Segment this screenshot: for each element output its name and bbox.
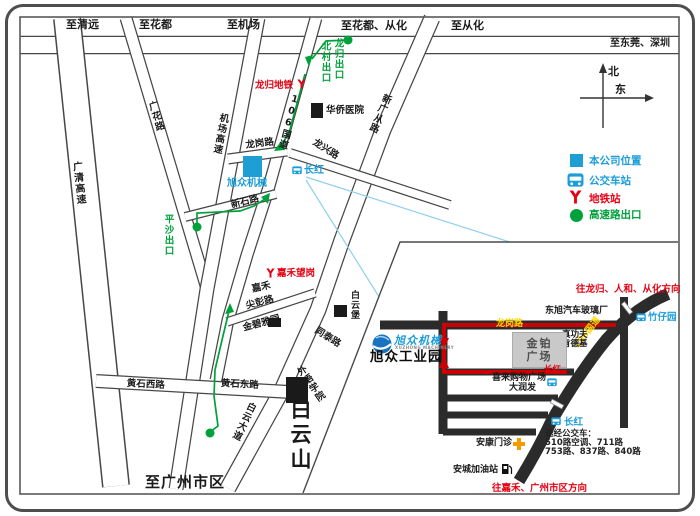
label-jiahe-wanggang: 嘉禾望岗 (277, 269, 315, 279)
label-ancheng-gas: 安城加油站 (453, 466, 498, 475)
legend-company-label: 本公司位置 (589, 156, 642, 167)
label-beicun-exit: 北村出口 (320, 41, 330, 83)
bus-stop-icon-changhong-inset (551, 417, 561, 425)
highway-exit-dot-pingsha (193, 223, 202, 232)
label-xilai-plaza: 喜来购物广场 (492, 374, 546, 383)
label-zhuziyuan: 竹仔园 (648, 313, 677, 323)
metro-icon-jiahewanggang (266, 269, 274, 278)
label-to-airport: 至机场 (227, 19, 260, 30)
label-to-guangzhou: 至广州市区 (145, 475, 225, 490)
label-direction-south: 往嘉禾、广州市区方向 (492, 484, 587, 494)
legend-exit-label: 高速路出口 (589, 210, 642, 221)
label-baiyun-mountain: 白云山 (289, 398, 310, 473)
label-company-name-main: 旭众机械 (227, 179, 267, 189)
route-map: 至清远 至花都 至机场 至花都、从化 至从化 至东莞、深圳 北 东 本公司位置 … (0, 0, 700, 516)
legend-exit-icon (570, 209, 583, 222)
label-glass-factory: 东旭汽车玻璃厂 (545, 307, 608, 316)
label-direction-north: 往龙归、人和、从化方向 (576, 285, 681, 295)
label-longgui-exit: 龙归出口 (333, 38, 343, 80)
label-to-huadu-conghua: 至花都、从化 (341, 20, 407, 31)
bus-stop-icon-zhuziyuan (636, 313, 646, 321)
legend-metro-icon (570, 191, 582, 204)
label-overseas-hospital: 华侨医院 (326, 106, 364, 116)
label-huangshi-east: 黄石东路 (221, 379, 259, 390)
label-pingsha-exit: 平沙出口 (163, 214, 173, 256)
label-to-qingyuan: 至清远 (66, 19, 99, 30)
label-changhong-red: 长红 (544, 366, 561, 375)
company-park-name: 旭众工业园 (370, 351, 443, 365)
label-changhong-inset: 长红 (564, 418, 583, 428)
compass-north-label: 北 (608, 66, 619, 77)
inset-connector-line-2 (306, 180, 381, 300)
highway-exit-dot-south (206, 429, 215, 438)
label-changhong-main: 长红 (304, 166, 324, 176)
label-longgang-inset: 龙岗路 (496, 320, 523, 329)
company-location-marker (243, 156, 262, 177)
legend-metro-label: 地铁站 (589, 194, 621, 205)
baiyun-fort-building-icon (334, 305, 347, 317)
legend-bus-icon (568, 173, 584, 186)
jinbo-plaza-building: 金铂 广场 (512, 332, 567, 368)
bus-stop-icon-xilai (547, 378, 557, 386)
label-to-conghua: 至从化 (451, 20, 484, 31)
label-darunfa: 大润发 (509, 384, 536, 393)
label-to-huadu: 至花都 (139, 19, 172, 30)
bus-stop-icon-changhong-main (292, 166, 302, 174)
label-ankang-clinic: 安康门诊 (476, 439, 512, 448)
label-baiyun-fort: 白云堡 (349, 290, 358, 320)
label-huangshi-west: 黄石西路 (127, 379, 165, 390)
label-longgui-metro: 龙归地铁 (255, 81, 293, 91)
legend-company-icon (570, 154, 583, 167)
highway-exit-dot-longgui (344, 36, 353, 45)
legend-bus-label: 公交车站 (589, 176, 631, 187)
jinbo-plaza-line1: 金铂 (527, 337, 553, 350)
compass-east-label: 东 (615, 84, 626, 95)
road-huangshi (96, 381, 290, 392)
label-to-dongguan-shenzhen: 至东莞、深圳 (610, 39, 670, 49)
hospital-building-icon (311, 103, 323, 118)
label-bus-lines-2: 753路、837路、840路 (545, 448, 641, 457)
road-guangqing-expressway (67, 18, 116, 486)
jinbo-plaza-line2: 广场 (527, 350, 553, 363)
